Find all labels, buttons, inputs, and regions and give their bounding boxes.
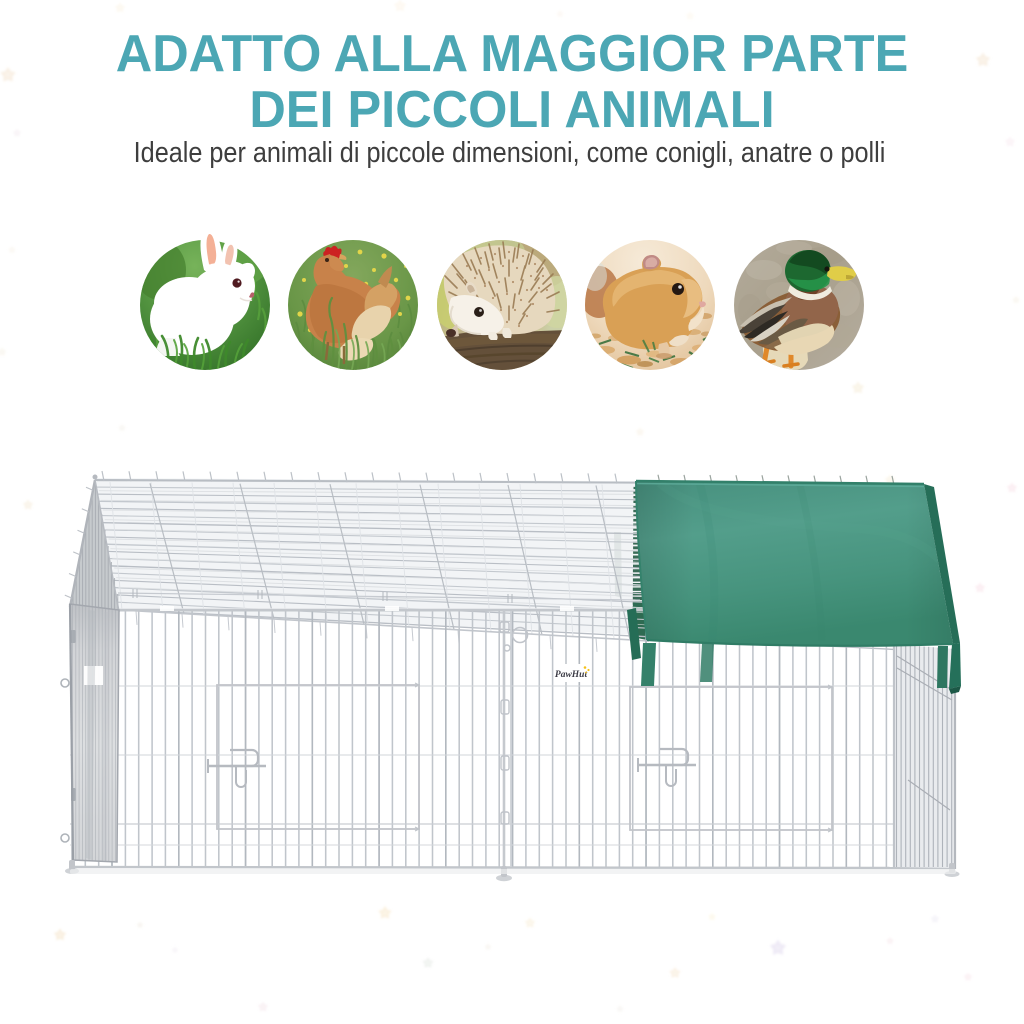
svg-text:PawHut: PawHut: [555, 670, 588, 680]
